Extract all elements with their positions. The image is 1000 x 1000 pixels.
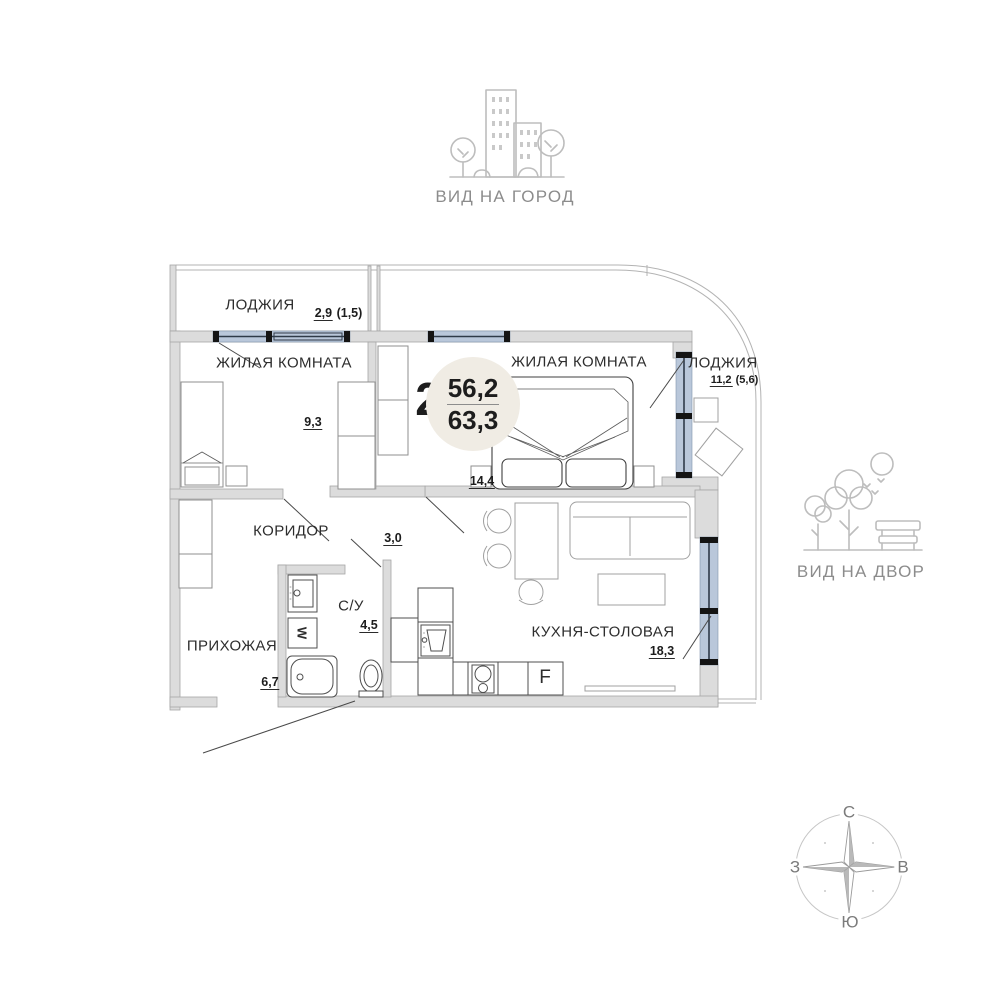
duct-shaft — [391, 618, 419, 662]
floor-plan-drawing — [0, 0, 1000, 1000]
nightstand — [634, 466, 654, 487]
fridge-label: F — [539, 667, 551, 689]
compass-north-label: С — [840, 804, 858, 821]
wardrobe-living2 — [378, 346, 408, 455]
city-view-icon — [450, 90, 564, 177]
floor-mat — [585, 686, 675, 691]
city-view-label: ВИД НА ГОРОД — [435, 187, 574, 207]
chair — [487, 544, 511, 568]
loggia-table — [694, 398, 718, 422]
room-area-living1: 9,3 — [303, 415, 322, 429]
tree-icon — [538, 130, 564, 156]
sun-icon — [871, 453, 893, 475]
compass-east-label: В — [894, 859, 911, 876]
window-kitchen — [700, 537, 718, 665]
room-label-corridor: КОРИДОР — [253, 523, 329, 540]
room-area-loggia-top: 2,9 (1,5) — [314, 306, 363, 320]
loggia-furniture — [694, 398, 743, 476]
living2-door-line — [426, 497, 464, 533]
wardrobe-living1 — [338, 382, 375, 489]
unit-area-total: 63,3 — [448, 406, 499, 435]
washbasin — [288, 575, 317, 612]
room-area-living2: 14,4 — [469, 474, 495, 488]
room-label-living1: ЖИЛАЯ КОМНАТА — [216, 355, 352, 372]
compass-icon — [796, 814, 902, 920]
sofa — [570, 502, 690, 559]
yard-view-label: ВИД НА ДВОР — [797, 562, 925, 582]
room-label-kitchen: КУХНЯ-СТОЛОВАЯ — [532, 624, 675, 641]
wardrobe-hallway — [179, 500, 212, 588]
dining-table — [515, 503, 558, 579]
kitchen-sink — [421, 625, 450, 656]
yard-view-icon — [804, 453, 922, 550]
room-label-living2: ЖИЛАЯ КОМНАТА — [511, 354, 647, 371]
room-label-loggia-right: ЛОДЖИЯ — [688, 355, 757, 372]
toilet — [359, 660, 383, 697]
window-living2 — [428, 331, 510, 342]
bush-icon — [518, 168, 538, 177]
stove — [472, 665, 494, 693]
room-area-bathroom: 4,5 — [359, 618, 378, 632]
birds-icon — [864, 479, 884, 494]
entry-door-line — [203, 701, 355, 753]
tree-icon — [825, 470, 872, 550]
room-label-loggia-top: ЛОДЖИЯ — [225, 297, 294, 314]
bathtub — [287, 656, 337, 697]
floorplan-page: ВИД НА ГОРОД ВИД НА ДВОР 2 56,2 63,3 ЛОД… — [0, 0, 1000, 1000]
unit-area-living: 56,2 — [448, 374, 499, 403]
single-bed — [181, 382, 223, 487]
dining-set — [484, 503, 559, 605]
room-label-bathroom: С/У — [338, 598, 364, 615]
unit-area-badge: 56,2 63,3 — [426, 357, 520, 451]
bench-icon — [876, 521, 920, 550]
loggia-chair — [695, 428, 743, 476]
nightstand — [226, 466, 247, 486]
room-area-loggia-right: 11,2 (5,6) — [710, 374, 759, 386]
washer-label: W — [295, 627, 310, 639]
compass-south-label: Ю — [838, 914, 861, 931]
tree-icon — [451, 138, 475, 162]
room-label-hallway: ПРИХОЖАЯ — [187, 638, 277, 655]
bathroom-door-line — [351, 539, 381, 567]
room-area-kitchen: 18,3 — [649, 644, 675, 658]
coffee-table — [598, 574, 665, 605]
chair — [487, 509, 511, 533]
window-living1 — [213, 331, 350, 342]
room-area-hallway: 6,7 — [260, 675, 279, 689]
room-area-corridor: 3,0 — [383, 531, 402, 545]
compass-west-label: З — [787, 859, 803, 876]
